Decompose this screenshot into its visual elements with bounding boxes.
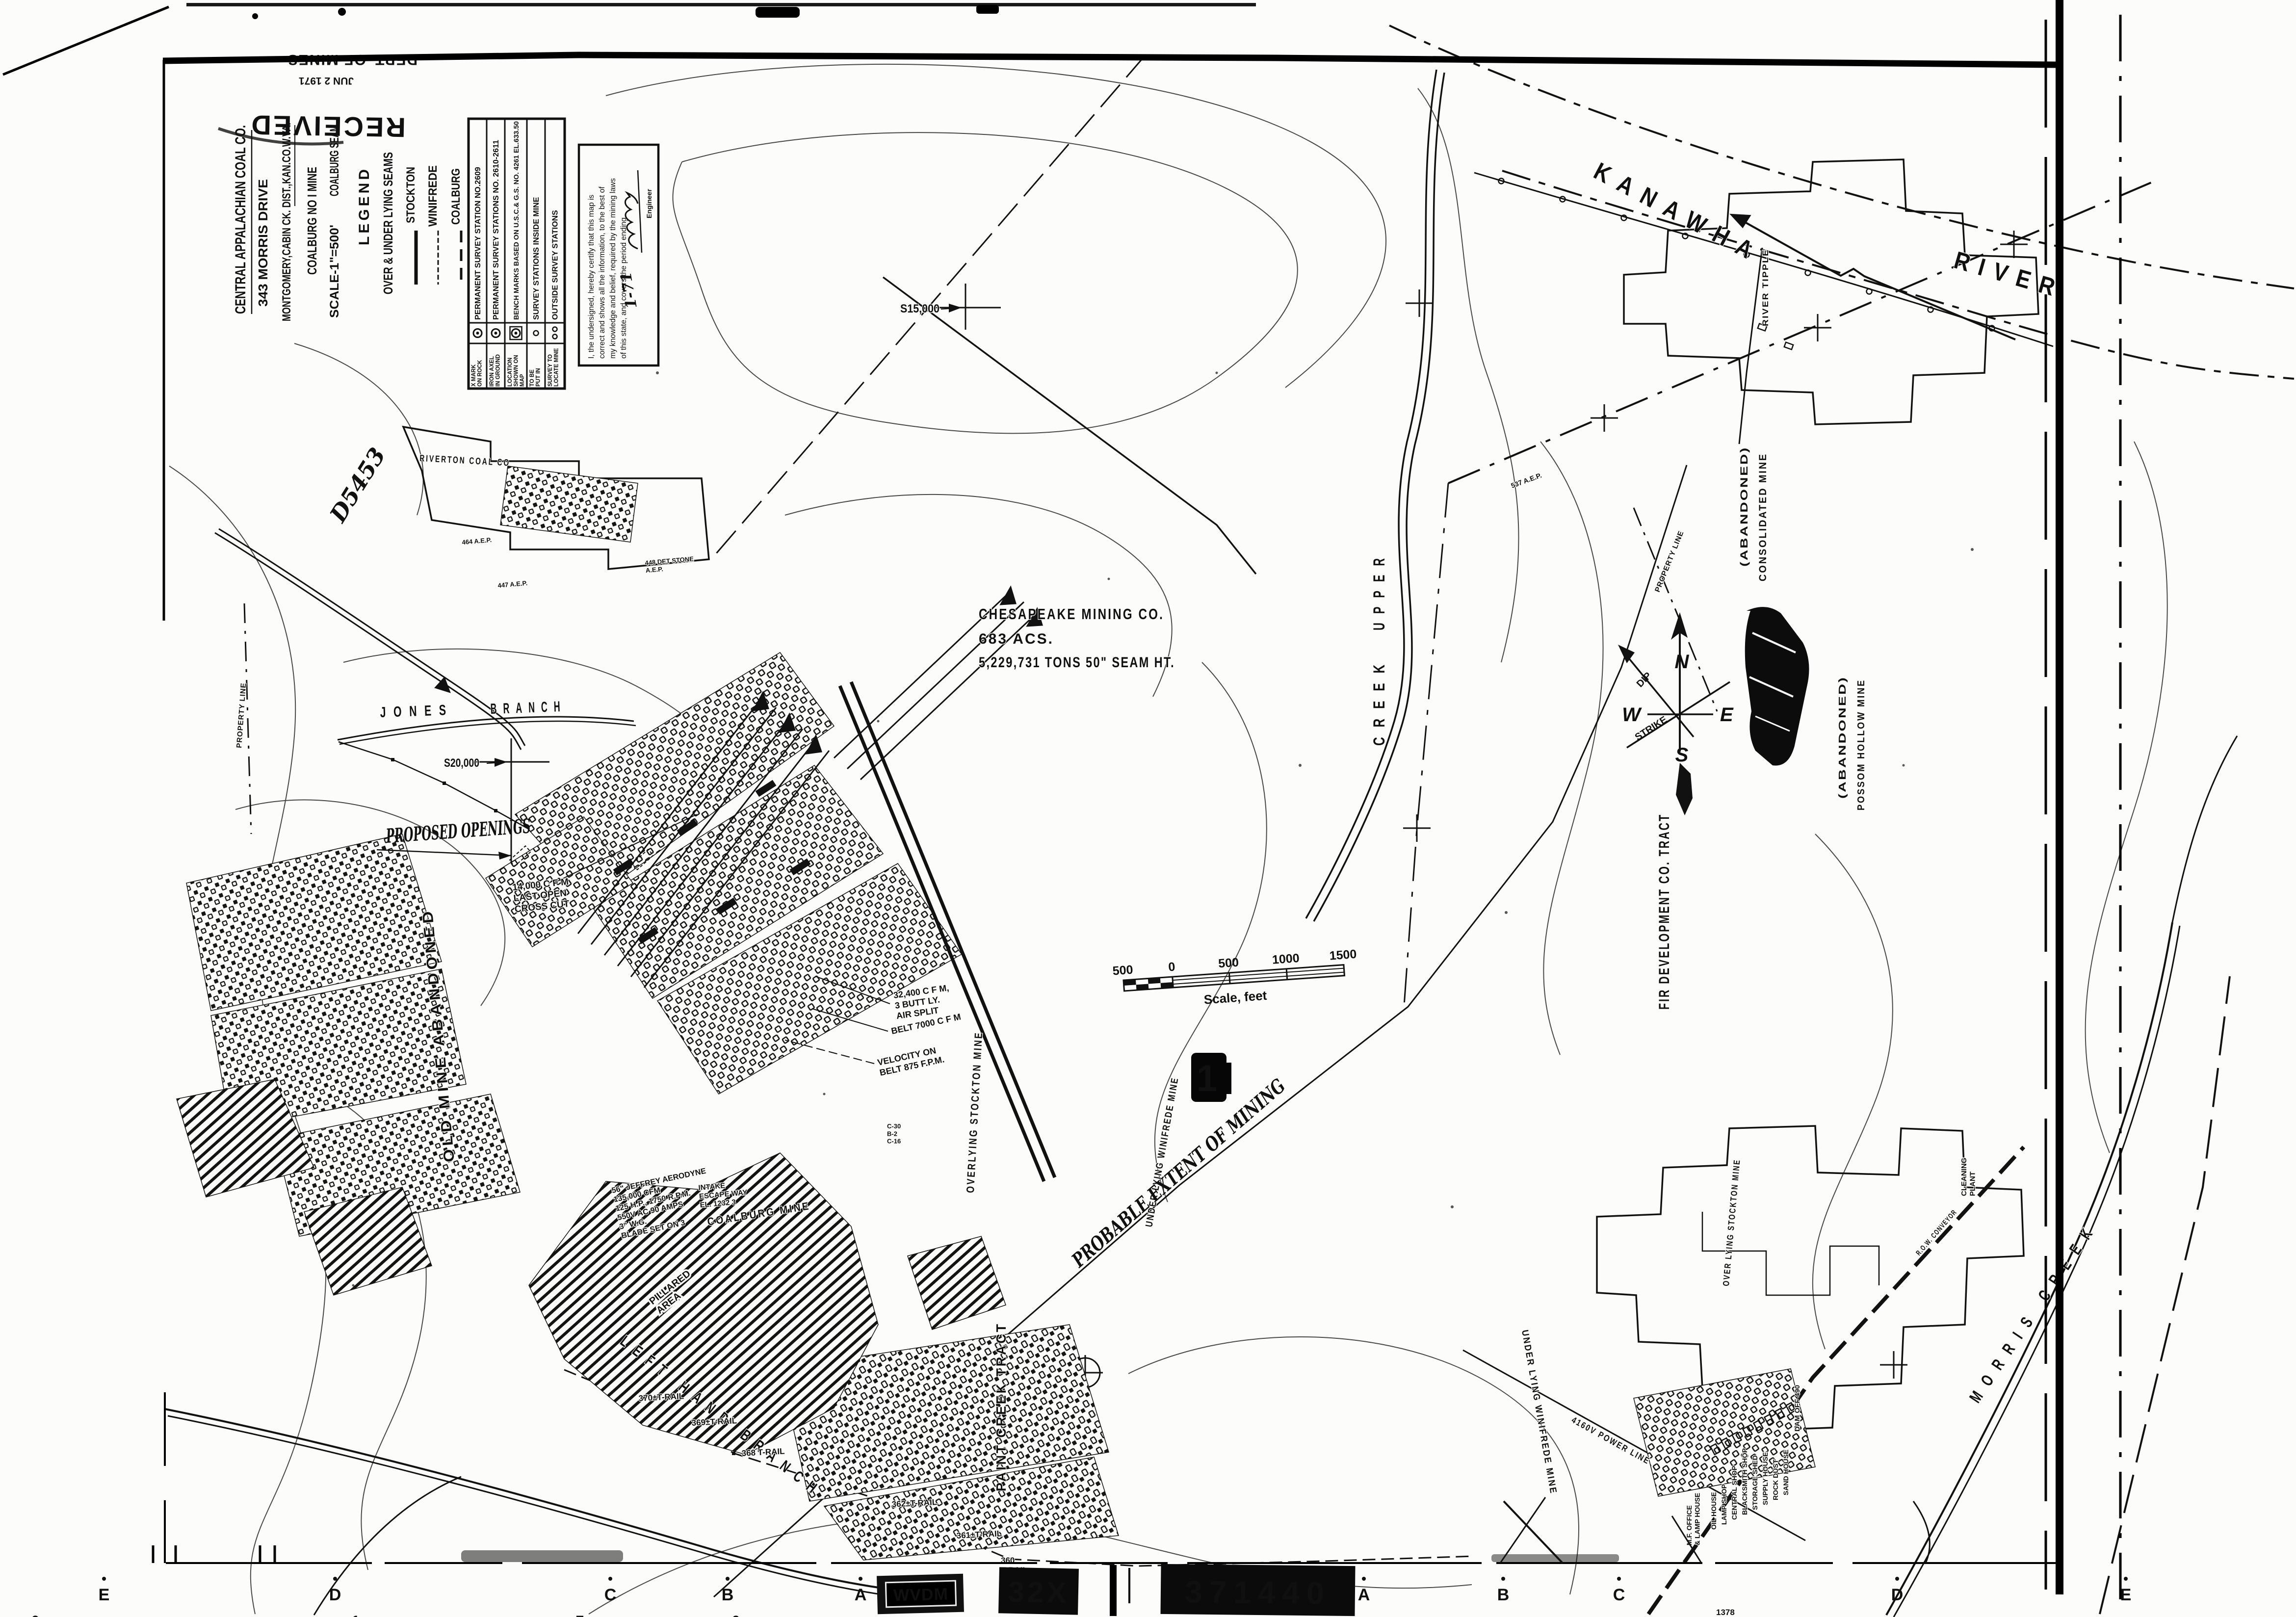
film-badge-frame: 371440 [1160,1564,1355,1616]
svg-text:SURVEY TO: SURVEY TO [548,354,553,387]
svg-text:ROCK DUST: ROCK DUST [1772,1459,1779,1500]
title-mine: COALBURG NO I MINE [305,167,319,275]
fiducial-letter: A [855,1577,867,1604]
certification-role: Engineer [645,189,653,218]
scale-tick: 500 [1218,956,1239,971]
film-speck [338,8,346,16]
svg-text:IN GROUND: IN GROUND [496,354,501,387]
svg-text:S20,000: S20,000 [444,756,479,770]
svg-text:E: E [2120,1586,2132,1604]
svg-text:R.O.W. CONVEYOR: R.O.W. CONVEYOR [1914,1208,1958,1257]
contour [1418,88,1519,662]
svg-text:DAM OFF 490: DAM OFF 490 [1793,1385,1801,1432]
svg-text:1378: 1378 [1716,1608,1735,1617]
label-branch: BRANCH [490,699,567,717]
contour [2086,442,2167,1153]
svg-text:(ABANDONED): (ABANDONED) [1837,676,1848,799]
svg-text:537 A.E.P.: 537 A.E.P. [1510,471,1543,489]
legend-seam-winifrede: WINIFREDE [426,165,440,227]
label-fir-tract: FIR DEVELOPMENT CO. TRACT [1656,813,1672,1010]
svg-text:PROPERTY LINE: PROPERTY LINE [235,682,248,748]
svg-text:RIVER: RIVER [1951,246,2067,304]
film-speck [252,13,258,19]
fiducial-letter: C [1613,1577,1625,1604]
label-det-stone: 448 DET STONEA.E.P. [645,555,695,574]
svg-text:JONES: JONES [380,702,454,721]
svg-text:A: A [1358,1586,1370,1604]
fiducial-letter: E [99,1577,110,1604]
label-proposed-openings: PROPOSED OPENINGS [385,815,531,848]
label-paint-creek-tract: PAINT CREEK TRACT [993,1322,1009,1491]
label-river-tipple: RIVER TIPPLE [1761,249,1770,326]
label-jones: JONES [380,702,454,721]
certification-line: I, the undersigned, hereby certify that … [587,194,596,359]
film-badges: WVDM 32X 371440 [877,1564,1356,1616]
label-probable-extent: PROBABLE EXTENT OF MINING [1067,1074,1290,1272]
title-company: CENTRAL APPALACHIAN COAL CO. [233,125,249,314]
legend-heading: LEGEND [356,166,372,245]
contour [673,132,1297,433]
tipple-tram [1739,248,1762,444]
frame-number-marker: 1 [1191,1053,1231,1102]
svg-text:LOCATE MINE: LOCATE MINE [554,348,560,387]
scale-bar-checker [1123,977,1173,991]
label-dam-off: DAM OFF 490 [1793,1385,1801,1432]
label-velocity: VELOCITY ONBELT 875 F.P.M. [877,1044,945,1077]
svg-text:CONSOLIDATED MINE: CONSOLIDATED MINE [1757,453,1769,581]
svg-text:B: B [722,1586,734,1604]
label-possum-abandoned: (ABANDONED) [1837,676,1848,799]
svg-text:CREEK: CREEK [1370,655,1388,746]
upper-creek-bank-1 [1306,70,1436,918]
label-consolidated-mine: CONSOLIDATED MINE [1757,453,1769,581]
bottom-smudge-1 [461,1550,623,1562]
label-kanawha: KANAWHA [1590,157,1767,269]
legend: LEGEND OVER & UNDER LYING SEAMS STOCKTON… [356,152,463,294]
frame-number: 1 [1197,1058,1217,1099]
svg-text:VELOCITY ONBELT 875 F.P.M.: VELOCITY ONBELT 875 F.P.M. [877,1044,945,1077]
diagonal-boundary [883,277,1256,574]
survey-symbol-target [492,329,500,338]
compass-e: E [1720,704,1734,726]
edge-digit: 7 [576,1613,584,1617]
svg-text:A: A [855,1586,867,1604]
stamp-received: RECEIVED [249,109,406,143]
svg-text:E: E [99,1586,110,1604]
svg-text:M.F. OFFICE& LAMP HOUSE: M.F. OFFICE& LAMP HOUSE [1685,1493,1701,1545]
label-s20000: S20,000 [444,756,479,770]
svg-text:C-30B-2C-16: C-30B-2C-16 [887,1122,901,1145]
svg-text:OIL HOUSE: OIL HOUSE [1710,1492,1718,1530]
svg-text:STORAGE SHED: STORAGE SHED [1751,1455,1759,1510]
label-property-line-1: PROPERTY LINE [1653,529,1686,593]
title-scale: SCALE-1"=500' [328,225,341,318]
label-s15000: S15,000 [900,302,939,315]
jones-branch-stream-2 [339,721,636,744]
haul-road [215,529,525,750]
label-el-1378: 1378 [1716,1608,1735,1617]
label-sand-house: SAND HOUSE [1782,1450,1790,1495]
svg-text:448 DET STONEA.E.P.: 448 DET STONEA.E.P. [645,555,695,574]
label-riverton: RIVERTON COAL CO [419,453,511,469]
badge-divider-thin [1128,1568,1130,1603]
label-aep-537: 537 A.E.P. [1510,471,1543,489]
svg-text:S15,000: S15,000 [900,302,939,315]
svg-text:CENTRAL SHOP: CENTRAL SHOP [1730,1466,1738,1520]
survey-symbol-target [473,329,482,338]
svg-text:RIVER TIPPLE: RIVER TIPPLE [1761,249,1770,326]
svg-text:SUPPLY HOUSE: SUPPLY HOUSE [1761,1452,1769,1505]
label-aep-447: 447 A.E.P. [497,579,528,589]
svg-text:D: D [329,1586,341,1604]
label-consolidated-abandoned: (ABANDONED) [1739,446,1750,567]
svg-text:PAINT CREEK TRACT: PAINT CREEK TRACT [993,1322,1009,1491]
svg-text:14,000 C F MLAST OPENCROSS CUT: 14,000 C F MLAST OPENCROSS CUT [512,877,571,915]
survey-row-text: OUTSIDE SURVEY STATIONS [551,210,560,320]
scale-tick: 1500 [1329,947,1357,963]
morris-creek-upper [2172,736,2237,922]
contour [1540,442,1603,1055]
legend-seam-stockton: STOCKTON [404,167,417,223]
label-river: RIVER [1951,246,2067,304]
survey-symbol-dot [534,331,539,336]
svg-text:5,229,731 TONS 50" SEAM HT.: 5,229,731 TONS 50" SEAM HT. [979,654,1175,671]
svg-text:OVER LYING STOCKTON MINE: OVER LYING STOCKTON MINE [1721,1159,1742,1287]
stamp-date: JUN 2 1971 [299,75,354,86]
svg-text:CLEANINGPLANT: CLEANINGPLANT [1960,1158,1977,1196]
svg-text:SAND HOUSE: SAND HOUSE [1782,1450,1790,1495]
svg-text:OVERLYING STOCKTON MINE: OVERLYING STOCKTON MINE [964,1031,985,1193]
film-badge-wvdm-text: WVDM [893,1585,949,1605]
survey-row-label: TO BEPUT IN [529,368,542,387]
svg-text:B: B [1497,1586,1510,1604]
svg-text:447 A.E.P.: 447 A.E.P. [497,579,528,589]
badge-divider-thick [1110,1565,1117,1616]
label-underlying-winifrede-right: UNDER LYING WINIFREDE MINE [1519,1329,1559,1495]
scale-tick: 1000 [1272,951,1300,967]
compass-n: N [1675,651,1690,673]
survey-symbol-table: X MARKON ROCKPERMANENT SURVEY STATION NO… [469,119,565,389]
survey-row-label: SURVEY TOLOCATE MINE [548,348,560,387]
svg-text:BLACKSMITH SHOP: BLACKSMITH SHOP [1741,1448,1748,1515]
legend-seam-coalburg: COALBURG [449,168,463,225]
svg-text:RIVERTON COAL CO: RIVERTON COAL CO [419,453,511,469]
survey-symbol-target-box [510,327,522,339]
svg-text:D: D [1891,1586,1904,1604]
survey-row-label: X MARKON ROCK [471,360,483,387]
certification-line: my knowledge and belief, required by the… [609,178,617,359]
pillared-area-east [908,1236,1006,1330]
fiducial-letter: D [1891,1577,1904,1604]
fiducial-letter: E [2120,1577,2132,1604]
certification-line: correct and shows all the information, t… [598,186,606,359]
svg-text:PROBABLE EXTENT OF MINING: PROBABLE EXTENT OF MINING [1067,1074,1290,1272]
certification-box: I, the undersigned, hereby certify that … [579,145,658,365]
label-c30: C-30B-2C-16 [887,1122,901,1145]
film-badge-frame-text: 371440 [1185,1574,1331,1611]
survey-row-text: BENCH MARKS BASED ON U.S.C.& G.S. NO. 42… [513,121,520,320]
label-possum-mine: POSSOM HOLLOW MINE [1856,679,1867,810]
edge-digit: 0 [732,1613,740,1617]
label-file-number: D5453 [324,443,391,528]
fiducial-letter: D [329,1577,341,1604]
fiducial-letter: B [1497,1577,1510,1604]
svg-text:UPPER: UPPER [1370,549,1388,630]
svg-text:FIR DEVELOPMENT CO. TRACT: FIR DEVELOPMENT CO. TRACT [1656,813,1672,1010]
label-blacksmith-shop: BLACKSMITH SHOP [1741,1448,1748,1515]
svg-text:SHOWN ON: SHOWN ON [514,355,520,387]
svg-text:KANAWHA: KANAWHA [1590,157,1767,269]
compass-s: S [1675,744,1689,766]
edge-digit: 1 [352,1613,360,1617]
label-lamp-shop: LAMP SHOP [1720,1484,1728,1525]
survey-row-label: LOCATIONSHOWN ONMAP [507,355,525,387]
label-upper: UPPER [1370,549,1388,630]
label-cleaning-plant: CLEANINGPLANT [1960,1158,1977,1196]
svg-text:TO BE: TO BE [529,369,535,387]
morris-creek-bank-1 [1886,922,2172,1615]
svg-text:PROPOSED OPENINGS: PROPOSED OPENINGS [385,815,531,848]
label-property-line-2: PROPERTY LINE [235,682,248,748]
survey-row-text: PERMANENT SURVEY STATIONS NO. 2610-2611 [492,140,500,320]
contour [1813,834,1893,1349]
lease-line-vertical [1404,483,1448,1006]
title-district: MONTGOMERY,CABIN CK. DIST.,KAN.CO.W.VA. [280,123,293,321]
film-badge-wvdm: WVDM [877,1574,964,1615]
svg-text:C: C [1613,1586,1625,1604]
label-supply-house: SUPPLY HOUSE [1761,1452,1769,1505]
film-fiducials: EDCBAABCDE0170 [31,1577,2132,1617]
label-last-open: 14,000 C F MLAST OPENCROSS CUT [512,877,571,915]
label-overlying-stockton-center: OVERLYING STOCKTON MINE [964,1031,985,1193]
fiducial-letter: C [604,1577,617,1604]
microfilm-scan-page: CENTRAL APPALACHIAN COAL CO. 343 MORRIS … [0,0,2296,1617]
title-address: 343 MORRIS DRIVE [256,179,270,307]
certification-text: I, the undersigned, hereby certify that … [587,178,628,359]
scale-tick: 500 [1112,963,1134,978]
fiducial-letter: A [1358,1577,1370,1604]
conveyor-line [1648,1147,2024,1614]
survey-symbol-dot2 [553,327,557,339]
scale-bar: 500050010001500 Scale, feet [1112,947,1359,1014]
film-top-blob-1 [756,7,800,18]
svg-text:LOCATION: LOCATION [507,358,513,387]
svg-text:683 ACS.: 683 ACS. [979,631,1054,647]
label-aep-464: 464 A.E.P. [462,536,492,546]
svg-text:PROPERTY LINE: PROPERTY LINE [1653,529,1686,593]
edge-digit: 0 [31,1613,40,1617]
consolidated-tract-outline [1624,159,2038,424]
svg-text:C: C [604,1586,617,1604]
label-central-shop: CENTRAL SHOP [1730,1466,1738,1520]
scale-caption: Scale, feet [1203,988,1268,1007]
compass-w: W [1622,704,1642,726]
label-acreage: 683 ACS. [979,631,1054,647]
svg-text:LAMP SHOP: LAMP SHOP [1720,1484,1728,1525]
svg-text:UNDER LYING WINIFREDE MINE: UNDER LYING WINIFREDE MINE [1519,1329,1559,1495]
upper-creek-bank-2 [1314,73,1444,921]
label-storage-shed: STORAGE SHED [1751,1455,1759,1510]
film-badge-reduction-text: 32X [1008,1575,1070,1610]
svg-text:IRON AXEL: IRON AXEL [489,356,495,387]
survey-row-text: PERMANENT SURVEY STATION NO.2609 [474,167,482,320]
label-mf-office: M.F. OFFICE& LAMP HOUSE [1685,1493,1701,1545]
film-badge-reduction: 32X [998,1567,1079,1615]
svg-text:CHESAPEAKE MINING CO.: CHESAPEAKE MINING CO. [979,605,1164,623]
label-oil-house: OIL HOUSE [1710,1492,1718,1530]
film-top-strip [186,3,1256,6]
svg-text:POSSOM HOLLOW MINE: POSSOM HOLLOW MINE [1856,679,1867,810]
certification-signature-line [638,170,642,253]
kanawha-lower-bank [1502,171,2294,379]
mine-map-canvas: CENTRAL APPALACHIAN COAL CO. 343 MORRIS … [0,0,2296,1617]
neatline-top [163,55,2060,65]
label-chesapeake: CHESAPEAKE MINING CO. [979,605,1164,623]
svg-text:PUT IN: PUT IN [536,368,542,387]
bottom-ticks [153,1545,275,1563]
title-block: CENTRAL APPALACHIAN COAL CO. 343 MORRIS … [233,123,341,321]
label-rock-dust: ROCK DUST [1772,1459,1779,1500]
svg-text:ON ROCK: ON ROCK [477,360,483,387]
compass-rose: N S E W DIP STRIKE [1618,612,1734,815]
label-creek: CREEK [1370,655,1388,746]
morris-creek-bank-2 [1894,926,2180,1617]
svg-text:MORRIS CREEK: MORRIS CREEK [1966,1217,2102,1406]
survey-row-text: SURVEY STATIONS INSIDE MINE [532,197,541,320]
film-corner-diagonal [3,7,169,75]
label-overlying-stockton-right: OVER LYING STOCKTON MINE [1721,1159,1742,1287]
svg-text:MAP: MAP [520,374,525,387]
film-edge-right-heavy [2056,0,2063,1594]
ink-blob [1745,607,1809,765]
label-tonnage: 5,229,731 TONS 50" SEAM HT. [979,654,1175,671]
svg-text:X MARK: X MARK [471,364,477,387]
svg-text:BRANCH: BRANCH [490,699,567,717]
svg-text:464 A.E.P.: 464 A.E.P. [462,536,492,546]
scale-tick: 0 [1168,960,1175,974]
svg-text:(ABANDONED): (ABANDONED) [1739,446,1750,567]
film-top-blob-2 [976,5,999,14]
survey-row-label: IRON AXELIN GROUND [489,354,501,387]
label-row-conveyor: R.O.W. CONVEYOR [1914,1208,1958,1257]
svg-text:D5453: D5453 [324,443,391,528]
legend-subheading: OVER & UNDER LYING SEAMS [381,152,395,294]
label-morris-creek: MORRIS CREEK [1966,1217,2102,1406]
compass-dip: DIP [1635,670,1654,689]
